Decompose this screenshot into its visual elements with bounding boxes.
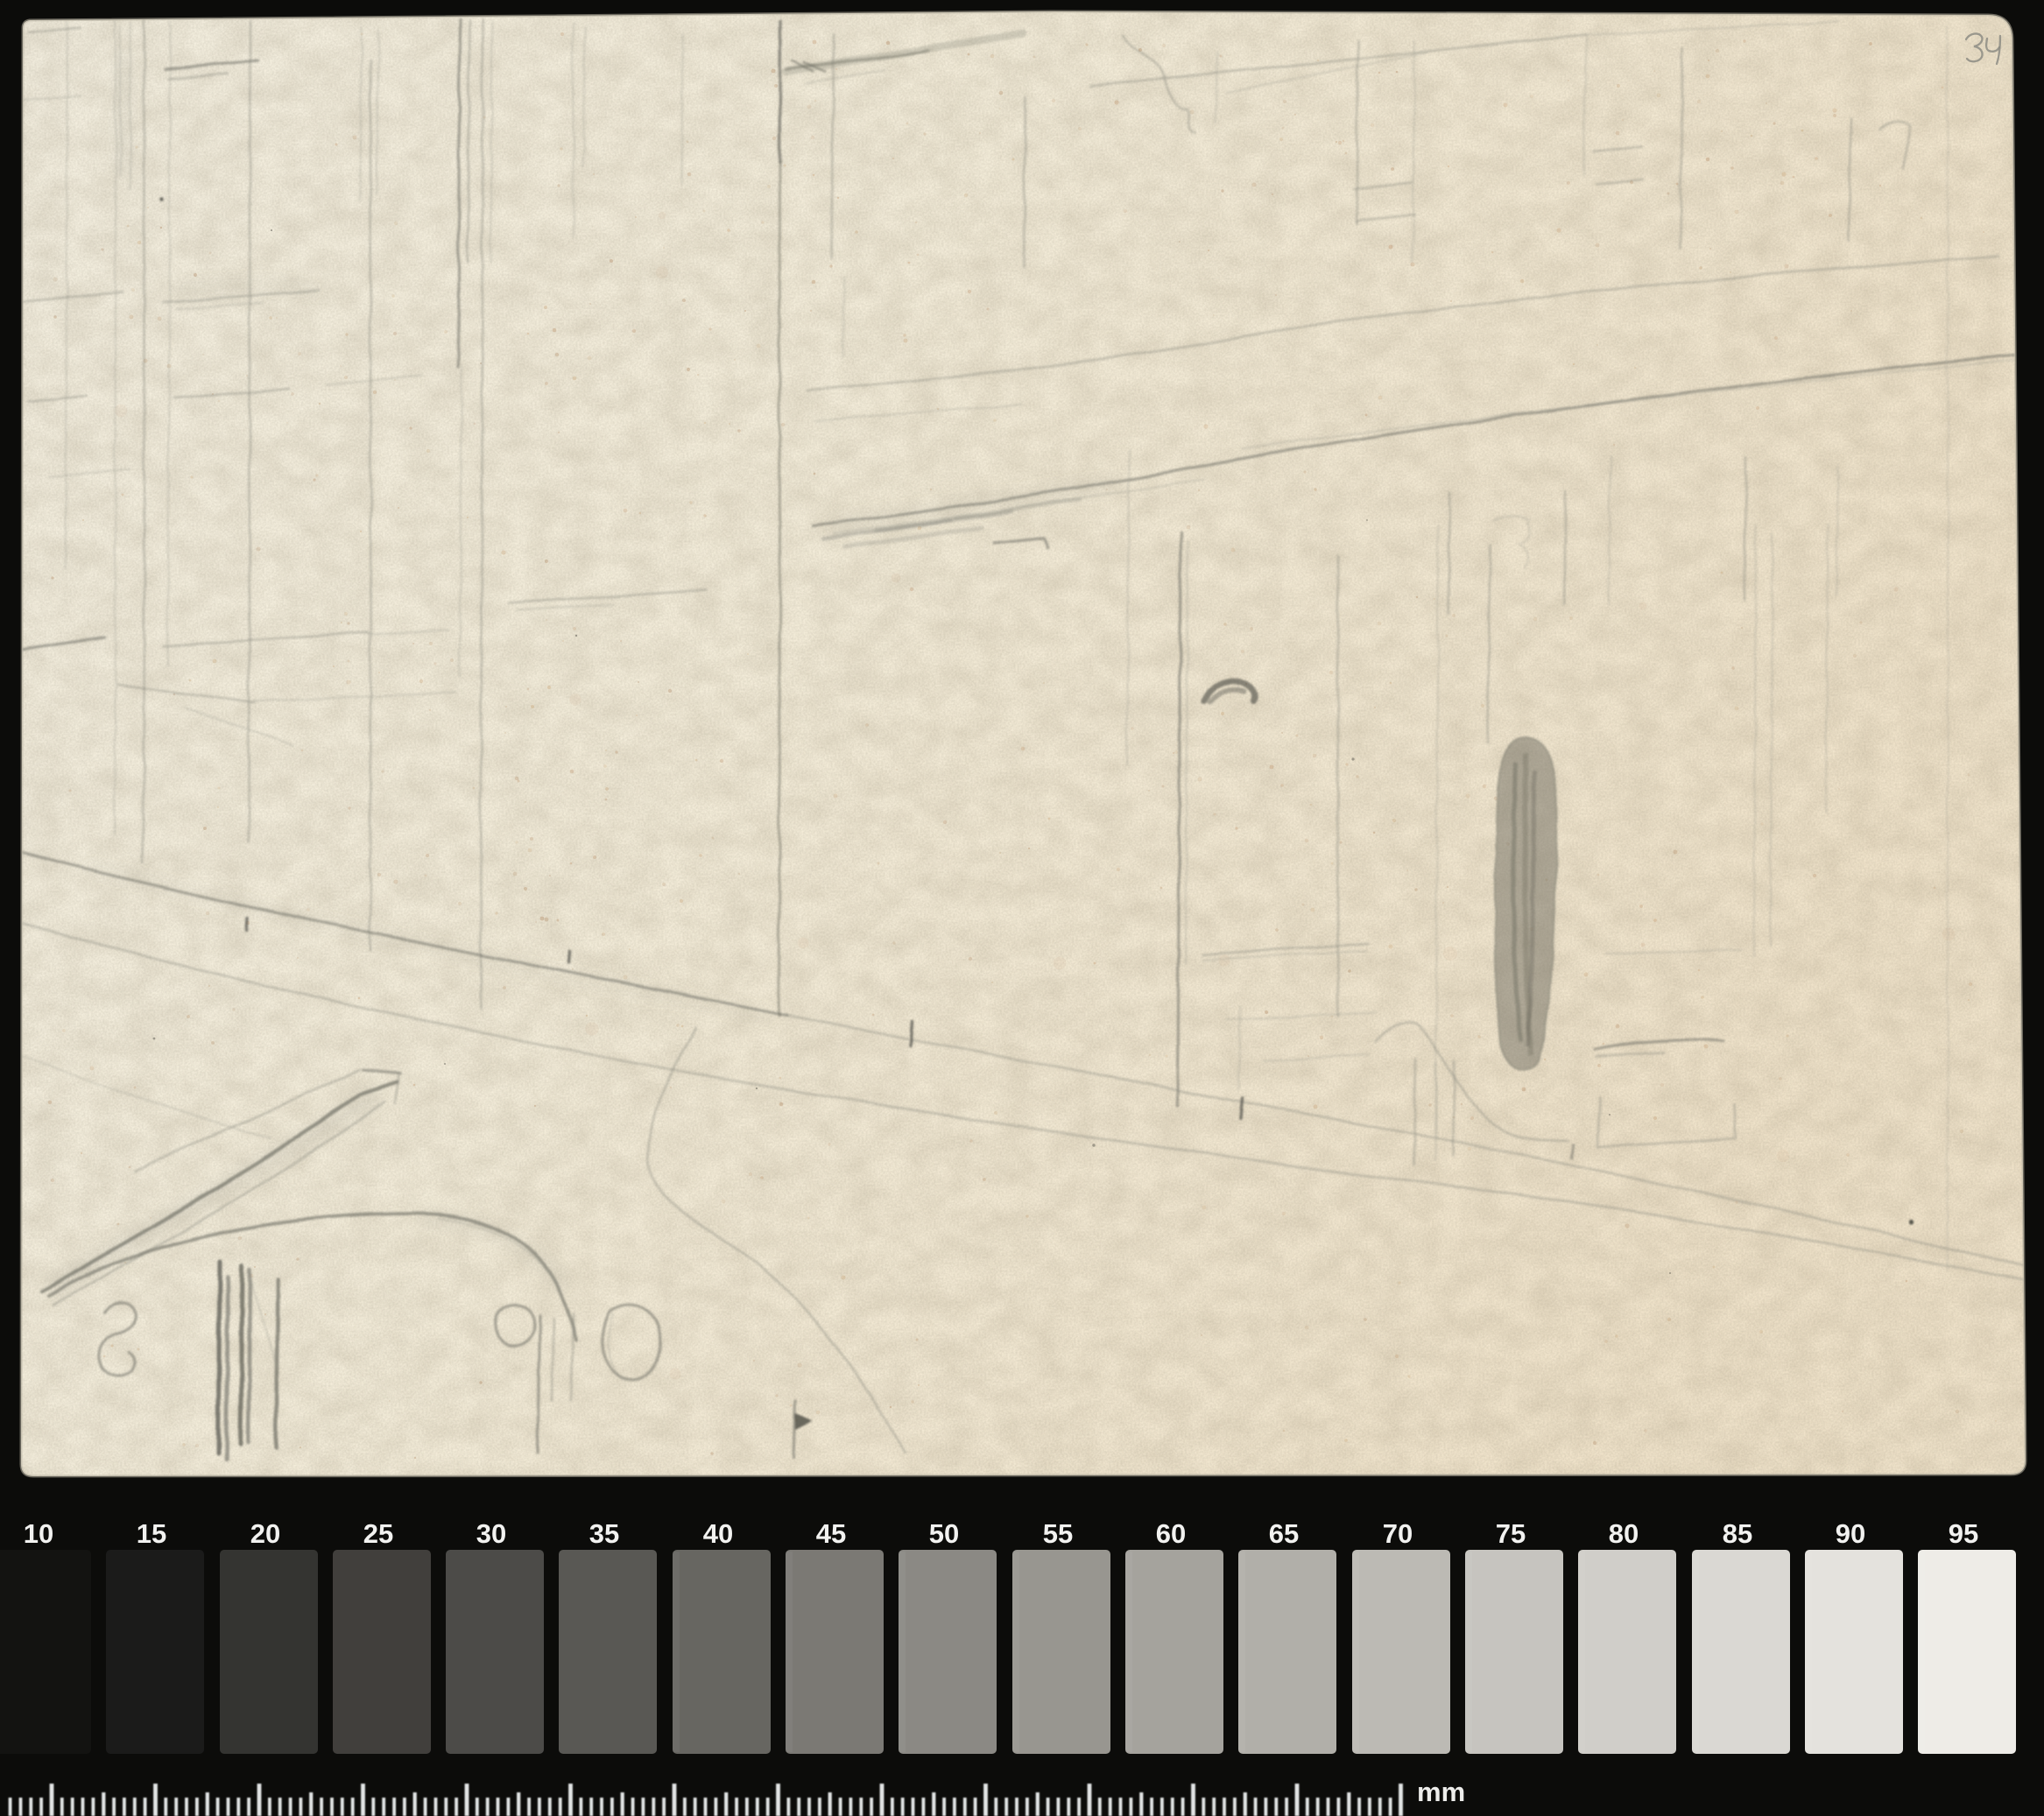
svg-text:25: 25	[363, 1518, 393, 1549]
svg-text:10: 10	[24, 1518, 53, 1549]
svg-text:85: 85	[1723, 1518, 1752, 1549]
svg-text:65: 65	[1269, 1518, 1299, 1549]
svg-text:90: 90	[1836, 1518, 1865, 1549]
svg-text:15: 15	[137, 1518, 166, 1549]
svg-text:20: 20	[250, 1518, 280, 1549]
svg-text:80: 80	[1609, 1518, 1639, 1549]
svg-text:55: 55	[1043, 1518, 1073, 1549]
svg-text:70: 70	[1383, 1518, 1413, 1549]
svg-text:40: 40	[703, 1518, 733, 1549]
svg-text:45: 45	[816, 1518, 846, 1549]
svg-text:95: 95	[1949, 1518, 1978, 1549]
svg-text:30: 30	[476, 1518, 506, 1549]
svg-text:35: 35	[589, 1518, 619, 1549]
svg-text:60: 60	[1156, 1518, 1186, 1549]
svg-text:75: 75	[1496, 1518, 1526, 1549]
svg-text:50: 50	[929, 1518, 959, 1549]
svg-text:mm: mm	[1417, 1777, 1465, 1807]
